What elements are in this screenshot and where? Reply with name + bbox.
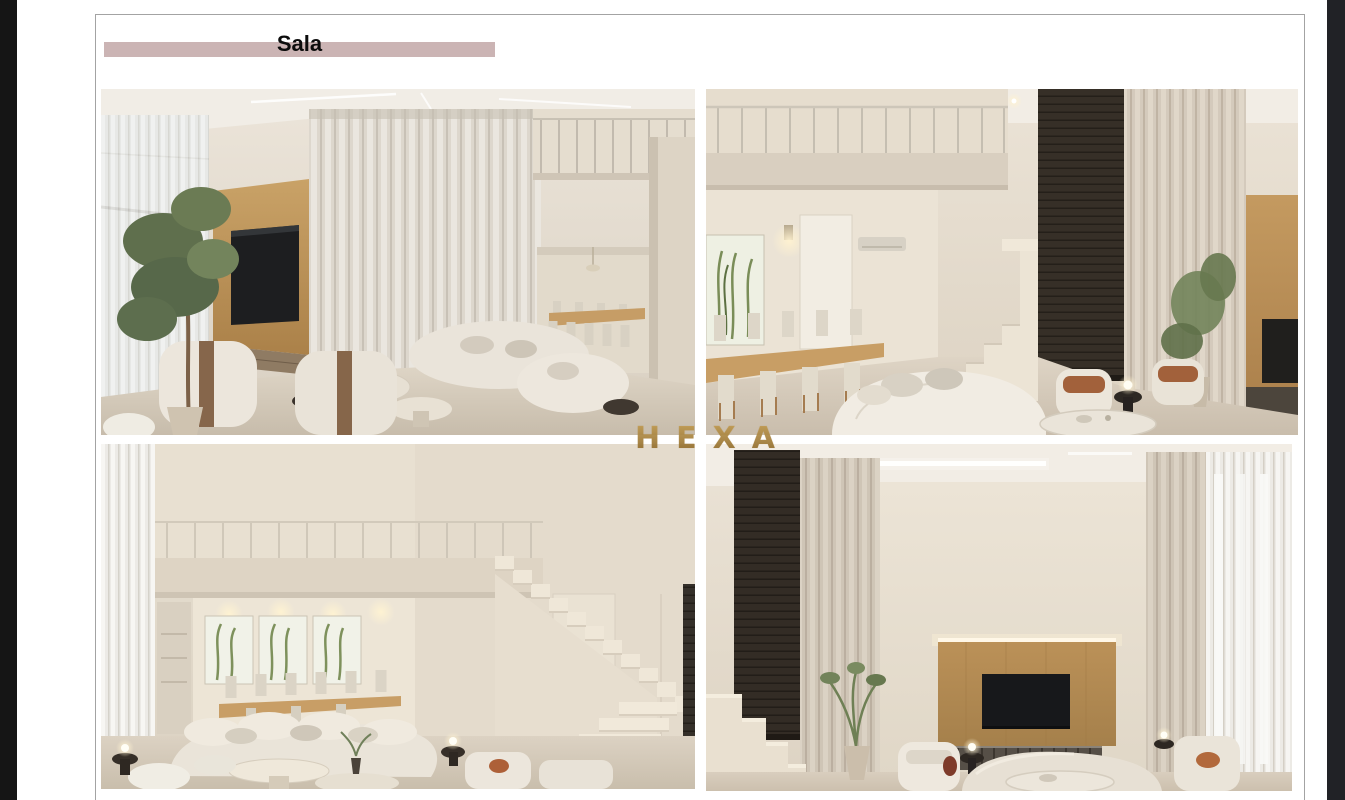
render-photo-top-right	[706, 89, 1298, 435]
marble-coffee-table	[1040, 410, 1156, 435]
dark-slatted-wall	[1038, 89, 1124, 381]
render-bottom-left-illustration	[101, 444, 695, 789]
render-photo-bottom-right	[706, 444, 1292, 791]
left-black-strip	[0, 0, 17, 800]
right-curtains	[1146, 452, 1292, 776]
render-bottom-right-illustration	[706, 444, 1292, 791]
render-photo-top-left	[101, 89, 695, 435]
left-sheer-curtains	[101, 444, 155, 778]
coffee-table	[1006, 771, 1114, 791]
document-page: Sala	[95, 14, 1305, 800]
tv-wood-wall	[1246, 195, 1298, 435]
dark-slatted-panel	[734, 450, 800, 740]
render-photo-bottom-left	[101, 444, 695, 789]
section-title: Sala	[104, 32, 495, 56]
left-curtain	[800, 458, 880, 776]
mezzanine	[706, 89, 1008, 190]
render-top-right-illustration	[706, 89, 1298, 435]
render-top-left-illustration	[101, 89, 695, 435]
right-dark-strip	[1327, 0, 1345, 800]
tv-wood-wall	[932, 634, 1122, 770]
